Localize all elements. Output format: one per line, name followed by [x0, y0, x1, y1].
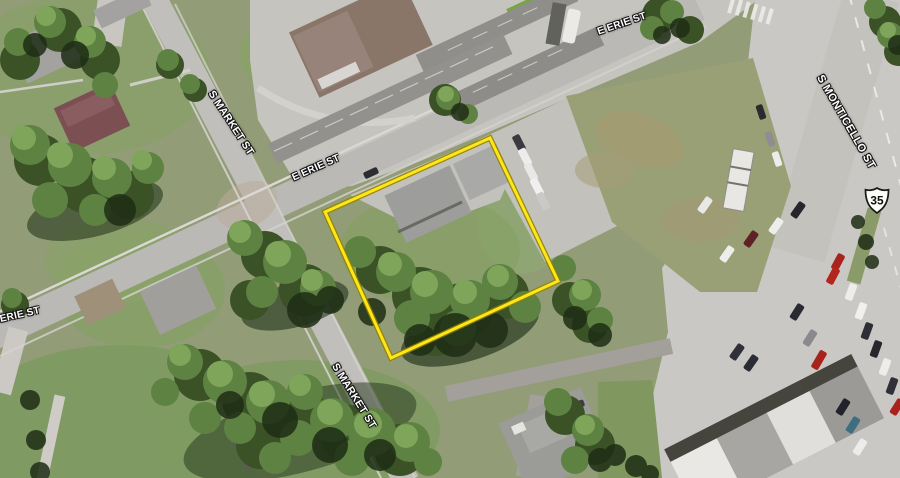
us-route-35-shield: 35 — [861, 186, 893, 216]
satellite-imagery — [0, 0, 900, 478]
satellite-map[interactable]: E ERIE ST E ERIE ST ERIE ST S MARKET ST … — [0, 0, 900, 478]
route-shield-number: 35 — [870, 194, 884, 208]
